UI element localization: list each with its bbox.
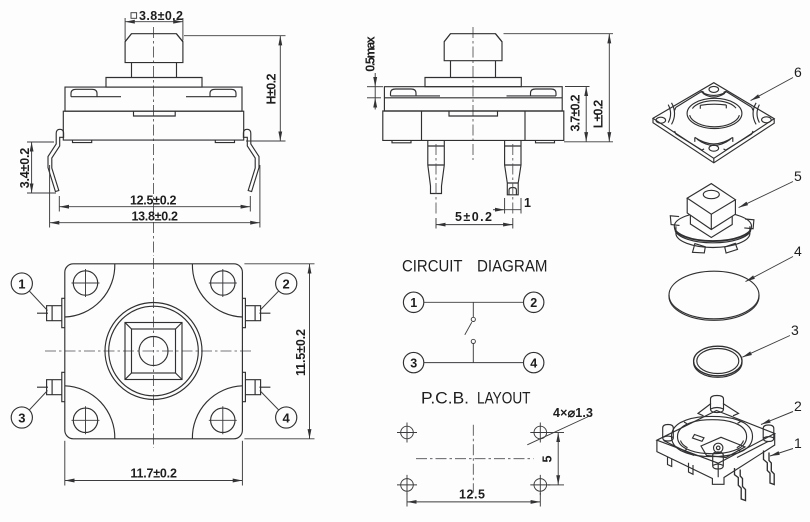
svg-text:3: 3	[410, 356, 417, 370]
svg-text:11.7±0.2: 11.7±0.2	[130, 467, 177, 481]
svg-text:CIRCUIT: CIRCUIT	[402, 257, 463, 276]
svg-text:1: 1	[794, 435, 802, 451]
svg-text:3: 3	[791, 322, 799, 338]
svg-text:11.5±0.2: 11.5±0.2	[294, 329, 308, 376]
svg-text:3.4±0.2: 3.4±0.2	[18, 148, 32, 189]
svg-text:5: 5	[541, 455, 555, 462]
svg-text:5: 5	[794, 168, 802, 184]
svg-text:H±0.2: H±0.2	[265, 73, 279, 104]
svg-text:12.5: 12.5	[459, 488, 485, 502]
svg-text:3.7±0.2: 3.7±0.2	[569, 94, 583, 131]
svg-text:L±0.2: L±0.2	[592, 100, 606, 129]
svg-text:4: 4	[530, 356, 537, 370]
svg-text:12.5±0.2: 12.5±0.2	[130, 194, 177, 208]
svg-text:LAYOUT: LAYOUT	[477, 390, 531, 408]
svg-text:1: 1	[524, 196, 531, 210]
svg-text:2: 2	[794, 398, 802, 414]
svg-text:2: 2	[530, 296, 537, 310]
svg-text:P.C.B.: P.C.B.	[421, 390, 469, 408]
svg-text:4: 4	[794, 243, 802, 259]
svg-text:3: 3	[18, 410, 25, 425]
svg-text:2: 2	[283, 276, 290, 291]
svg-text:1: 1	[410, 296, 417, 310]
svg-text:1: 1	[18, 276, 25, 291]
svg-text:6: 6	[794, 64, 802, 80]
svg-text:4: 4	[283, 410, 291, 425]
svg-text:0.5max: 0.5max	[364, 36, 378, 72]
svg-text:DIAGRAM: DIAGRAM	[477, 257, 548, 276]
svg-text:3.8±0.2: 3.8±0.2	[139, 9, 183, 23]
svg-text:4×⌀1.3: 4×⌀1.3	[553, 406, 593, 420]
svg-text:5±0.2: 5±0.2	[455, 210, 492, 224]
svg-text:13.8±0.2: 13.8±0.2	[132, 210, 179, 224]
